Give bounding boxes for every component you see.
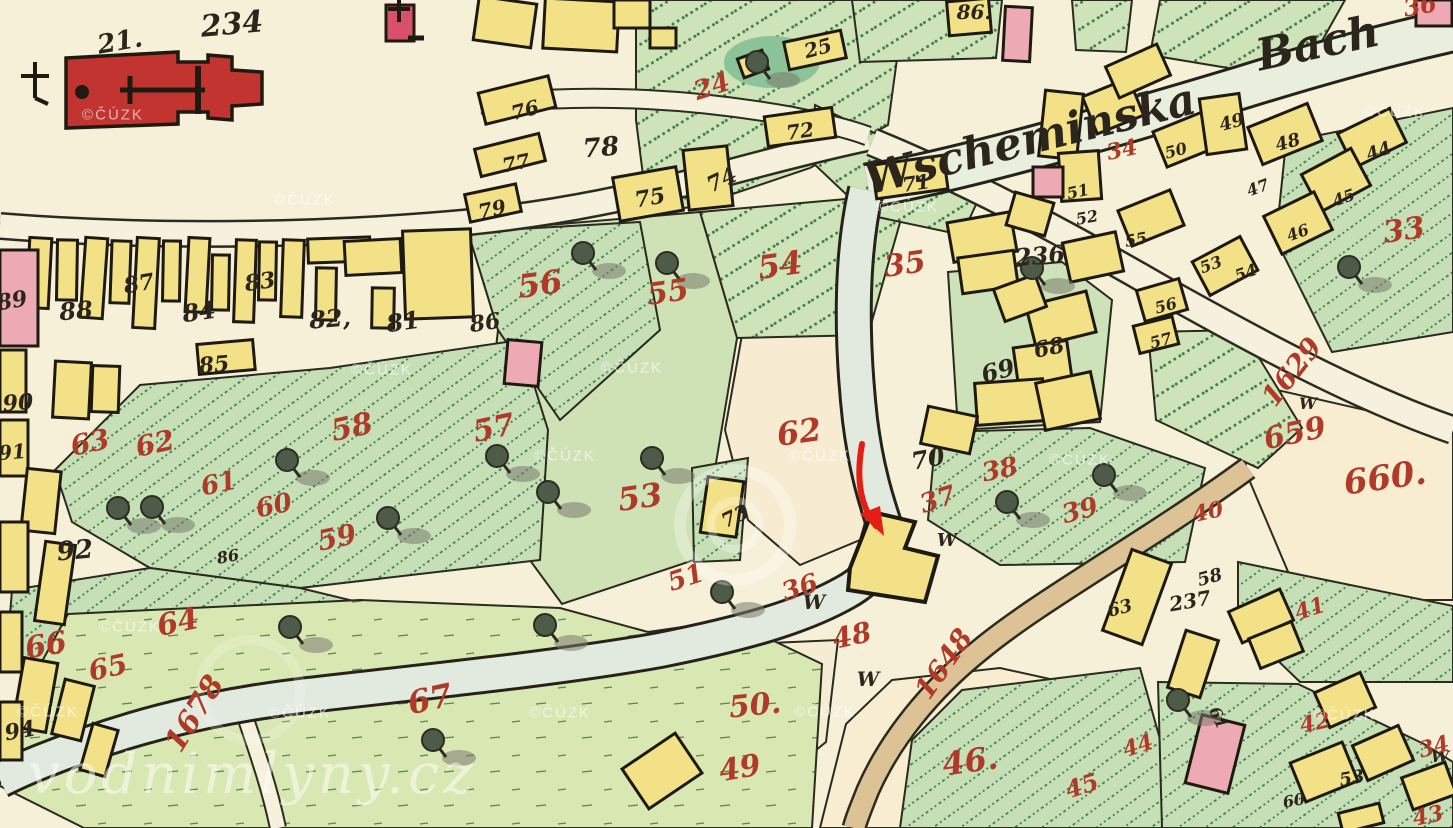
pink-building [504, 340, 542, 387]
yellow-building [234, 240, 257, 323]
yellow-building [650, 28, 676, 48]
yellow-building [316, 268, 337, 320]
yellow-building [56, 240, 77, 300]
yellow-building [91, 366, 120, 413]
historic-cadastral-map[interactable]: vodnimlyny.cz WscheminskaBach21.23486.25… [0, 0, 1453, 828]
yellow-building [1039, 90, 1084, 160]
yellow-building [921, 406, 978, 454]
yellow-building [402, 229, 473, 319]
yellow-building [1199, 93, 1246, 154]
pink-building [0, 250, 38, 346]
yellow-building [185, 238, 210, 313]
yellow-building [372, 288, 395, 328]
yellow-building [0, 420, 28, 476]
yellow-building [473, 0, 537, 48]
yellow-building [613, 167, 684, 221]
yellow-building [543, 0, 620, 52]
yellow-building [947, 0, 992, 36]
yellow-building [53, 361, 92, 419]
yellow-building [0, 702, 22, 760]
yellow-building [614, 0, 650, 28]
yellow-building [0, 350, 26, 412]
pink-building [1033, 167, 1063, 197]
yellow-building [110, 241, 131, 304]
yellow-building [258, 242, 276, 300]
pink-building [1003, 6, 1033, 61]
yellow-building [1058, 151, 1101, 202]
pink-building [1416, 0, 1452, 26]
yellow-building [1036, 372, 1101, 431]
yellow-building [0, 612, 22, 672]
map-canvas [0, 0, 1453, 828]
yellow-building [683, 146, 733, 210]
yellow-building [212, 255, 230, 310]
yellow-building [133, 237, 160, 328]
yellow-building [344, 239, 402, 276]
yellow-building [80, 237, 108, 318]
yellow-building [197, 340, 255, 375]
yellow-building [281, 240, 305, 318]
yellow-building [162, 241, 180, 301]
yellow-building [0, 522, 28, 592]
